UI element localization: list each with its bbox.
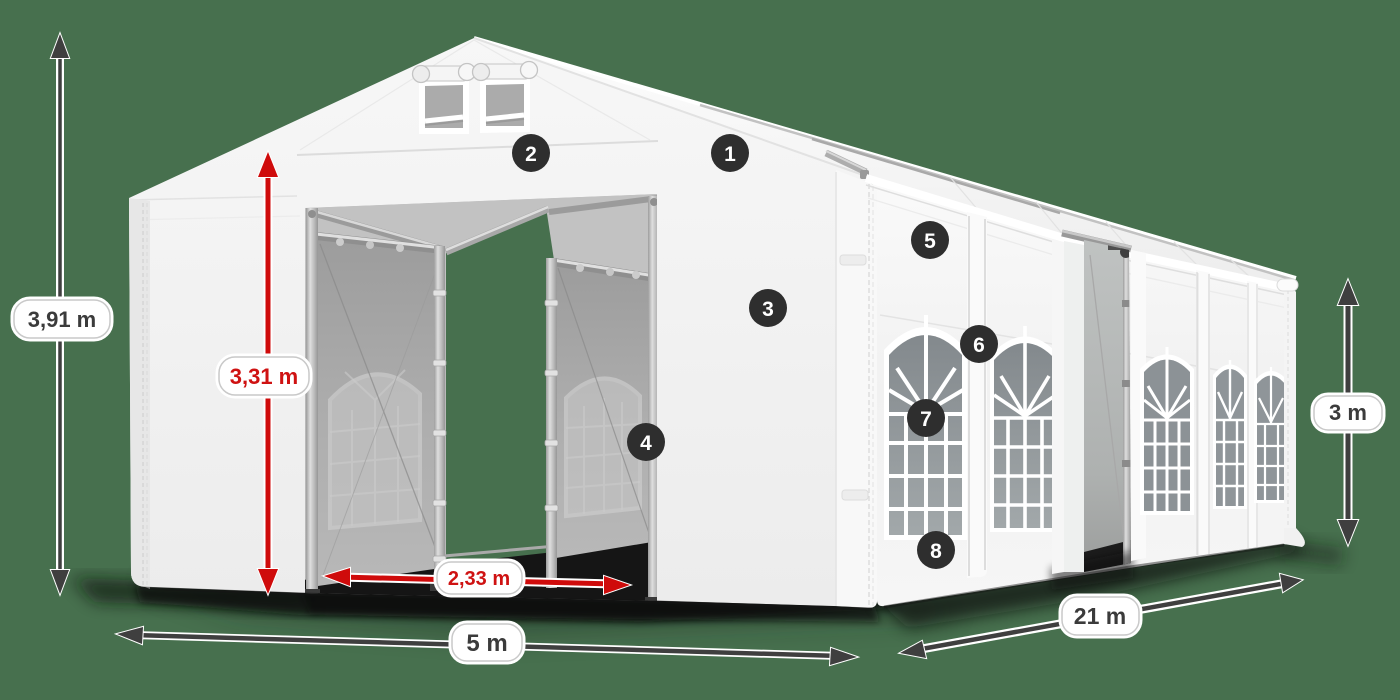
svg-text:3,91 m: 3,91 m [28, 307, 97, 332]
svg-text:6: 6 [973, 334, 985, 357]
svg-text:2: 2 [525, 143, 537, 166]
svg-text:3 m: 3 m [1329, 400, 1367, 425]
svg-text:5: 5 [924, 230, 936, 253]
svg-text:7: 7 [920, 408, 932, 431]
svg-text:8: 8 [930, 540, 942, 563]
svg-text:3: 3 [762, 298, 774, 321]
svg-text:2,33 m: 2,33 m [448, 568, 510, 590]
svg-text:1: 1 [724, 143, 736, 166]
svg-text:3,31 m: 3,31 m [230, 364, 299, 389]
svg-text:5 m: 5 m [466, 630, 507, 657]
svg-text:4: 4 [640, 432, 652, 455]
svg-text:21 m: 21 m [1074, 603, 1126, 629]
